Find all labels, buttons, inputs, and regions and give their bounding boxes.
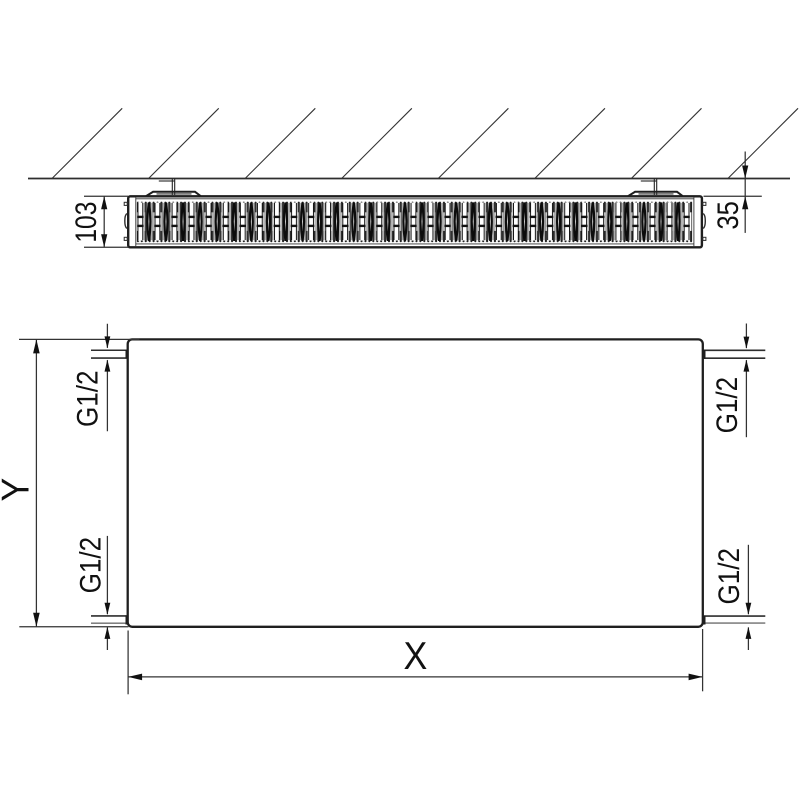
svg-text:G1/2: G1/2	[711, 377, 744, 434]
svg-text:G1/2: G1/2	[74, 537, 107, 594]
svg-text:103: 103	[69, 202, 103, 243]
svg-text:Y: Y	[0, 478, 37, 502]
svg-text:X: X	[403, 634, 427, 678]
svg-text:G1/2: G1/2	[713, 548, 746, 605]
svg-text:G1/2: G1/2	[71, 370, 104, 427]
svg-text:35: 35	[711, 201, 744, 230]
